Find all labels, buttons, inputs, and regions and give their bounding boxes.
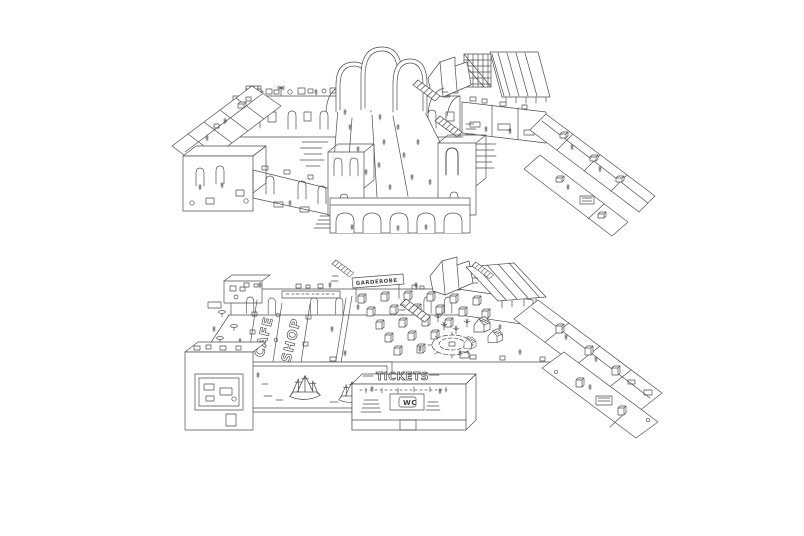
upper-front-arcade (314, 198, 470, 233)
shop-floor-label: SHOP (279, 317, 304, 364)
ground-right-wing (514, 300, 662, 438)
upper-front-left-gallery (183, 146, 335, 216)
tickets-wc-block: TICKETS WC (352, 371, 476, 430)
isometric-museum-drawing: GARDEROBE CAFE SHOP (0, 0, 804, 536)
tickets-label: TICKETS (376, 371, 429, 383)
upper-right-rooms (435, 97, 546, 143)
wc-label: WC (403, 399, 417, 407)
ground-level-drawing: GARDEROBE CAFE SHOP (185, 257, 662, 438)
illustration-canvas: GARDEROBE CAFE SHOP (0, 0, 804, 536)
garderobe-area: GARDEROBE (336, 274, 490, 363)
upper-roof-structures (428, 52, 550, 103)
upper-level-drawing (172, 47, 655, 236)
upper-right-wing (524, 114, 655, 236)
cafe-floor-label: CAFE (252, 315, 277, 359)
